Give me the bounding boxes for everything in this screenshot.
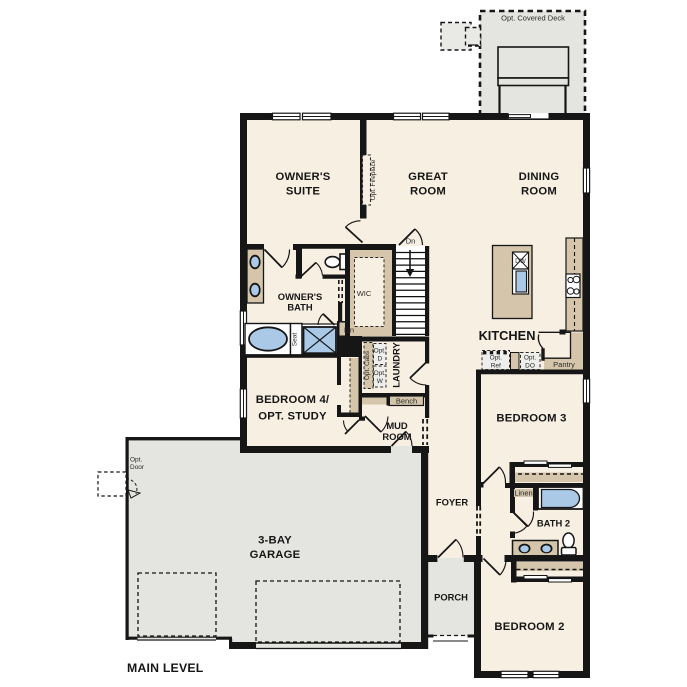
svg-text:ROOM: ROOM — [382, 431, 411, 442]
svg-text:DW: DW — [515, 258, 527, 265]
svg-text:MAIN LEVEL: MAIN LEVEL — [127, 661, 204, 675]
svg-text:OWNER'S: OWNER'S — [278, 291, 322, 302]
svg-text:Opt.: Opt. — [490, 355, 502, 362]
svg-text:BEDROOM 2: BEDROOM 2 — [494, 621, 564, 633]
svg-text:W: W — [377, 378, 384, 385]
svg-text:DINING: DINING — [519, 171, 560, 183]
svg-text:Opt.: Opt. — [374, 348, 386, 355]
svg-text:Opt.: Opt. — [524, 355, 536, 362]
svg-text:BEDROOM 4/: BEDROOM 4/ — [256, 394, 330, 406]
svg-text:Opt.: Opt. — [374, 370, 386, 377]
svg-text:BATH: BATH — [287, 302, 313, 313]
svg-text:WIC: WIC — [357, 289, 372, 298]
svg-text:Door: Door — [130, 464, 145, 471]
svg-text:Opt. Covered Deck: Opt. Covered Deck — [501, 14, 565, 23]
svg-text:KITCHEN: KITCHEN — [479, 328, 536, 343]
svg-text:Bench: Bench — [396, 397, 417, 406]
svg-text:D: D — [377, 356, 382, 363]
svg-text:PORCH: PORCH — [434, 592, 468, 603]
svg-text:OPT. STUDY: OPT. STUDY — [258, 411, 327, 423]
svg-text:SUITE: SUITE — [286, 186, 321, 198]
svg-text:ROOM: ROOM — [521, 186, 557, 198]
svg-text:GREAT: GREAT — [408, 171, 448, 183]
svg-text:Opt.: Opt. — [130, 457, 142, 464]
svg-text:LAUNDRY: LAUNDRY — [391, 342, 402, 388]
svg-text:Ref: Ref — [491, 363, 501, 370]
svg-text:OWNER'S: OWNER'S — [276, 171, 331, 183]
svg-text:Linen: Linen — [514, 489, 532, 498]
svg-text:MUD: MUD — [386, 420, 408, 431]
svg-text:GARAGE: GARAGE — [250, 549, 301, 561]
svg-text:Lin: Lin — [344, 326, 354, 335]
svg-text:Seat: Seat — [292, 333, 299, 347]
svg-text:Opt. Cabs: Opt. Cabs — [364, 350, 371, 380]
svg-text:Pantry: Pantry — [553, 360, 575, 369]
svg-text:Dn: Dn — [406, 237, 416, 246]
svg-text:FOYER: FOYER — [436, 497, 469, 508]
svg-text:BEDROOM 3: BEDROOM 3 — [496, 413, 566, 425]
svg-text:DO: DO — [525, 363, 535, 370]
svg-text:Opt. Fireplace: Opt. Fireplace — [370, 159, 377, 200]
svg-text:BATH 2: BATH 2 — [537, 518, 570, 529]
svg-text:ROOM: ROOM — [410, 186, 446, 198]
svg-text:3-BAY: 3-BAY — [258, 535, 292, 547]
